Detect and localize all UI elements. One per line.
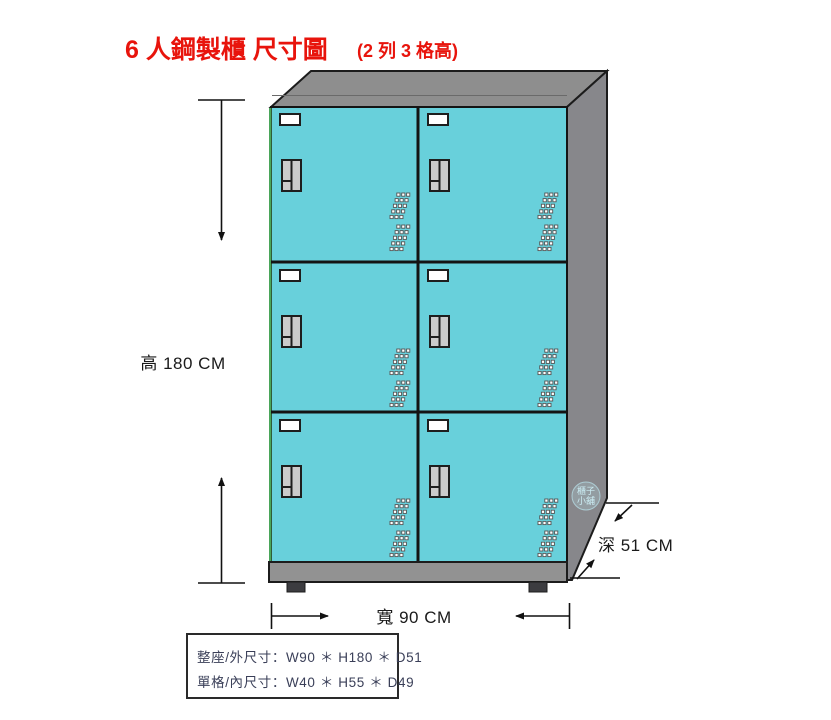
spec-outer-dimensions: 整座/外尺寸：W90 ＊ H180 ＊ D51 [197, 650, 422, 665]
cabinet-foot-left [287, 582, 305, 592]
watermark-stamp: 櫃子 小舖 [572, 482, 600, 510]
width-dimension-label: 寬 90 CM [376, 608, 451, 627]
cabinet-foot-right [529, 582, 547, 592]
cabinet-left-edge [269, 108, 272, 561]
height-dimension-label: 高 180 CM [140, 354, 225, 373]
depth-dimension-label: 深 51 CM [598, 536, 673, 555]
cabinet-base [269, 562, 567, 582]
spec-inner-dimensions: 單格/內尺寸：W40 ＊ H55 ＊ D49 [197, 675, 414, 690]
locker-dimension-diagram: 6 人鋼製櫃 尺寸圖 (2 列 3 格高) 櫃子 小舖 高 180 CM [0, 0, 831, 720]
height-dimension [198, 100, 245, 583]
watermark-text-bottom: 小舖 [577, 495, 595, 506]
cabinet-top-surface [271, 71, 607, 107]
watermark-text-top: 櫃子 [577, 485, 595, 496]
page-title: 6 人鋼製櫃 尺寸圖 [125, 36, 328, 64]
spec-box: 整座/外尺寸：W90 ＊ H180 ＊ D51 單格/內尺寸：W40 ＊ H55… [187, 634, 422, 698]
page-subtitle: (2 列 3 格高) [357, 40, 458, 61]
diagram-canvas: 6 人鋼製櫃 尺寸圖 (2 列 3 格高) 櫃子 小舖 高 180 CM [0, 0, 831, 720]
